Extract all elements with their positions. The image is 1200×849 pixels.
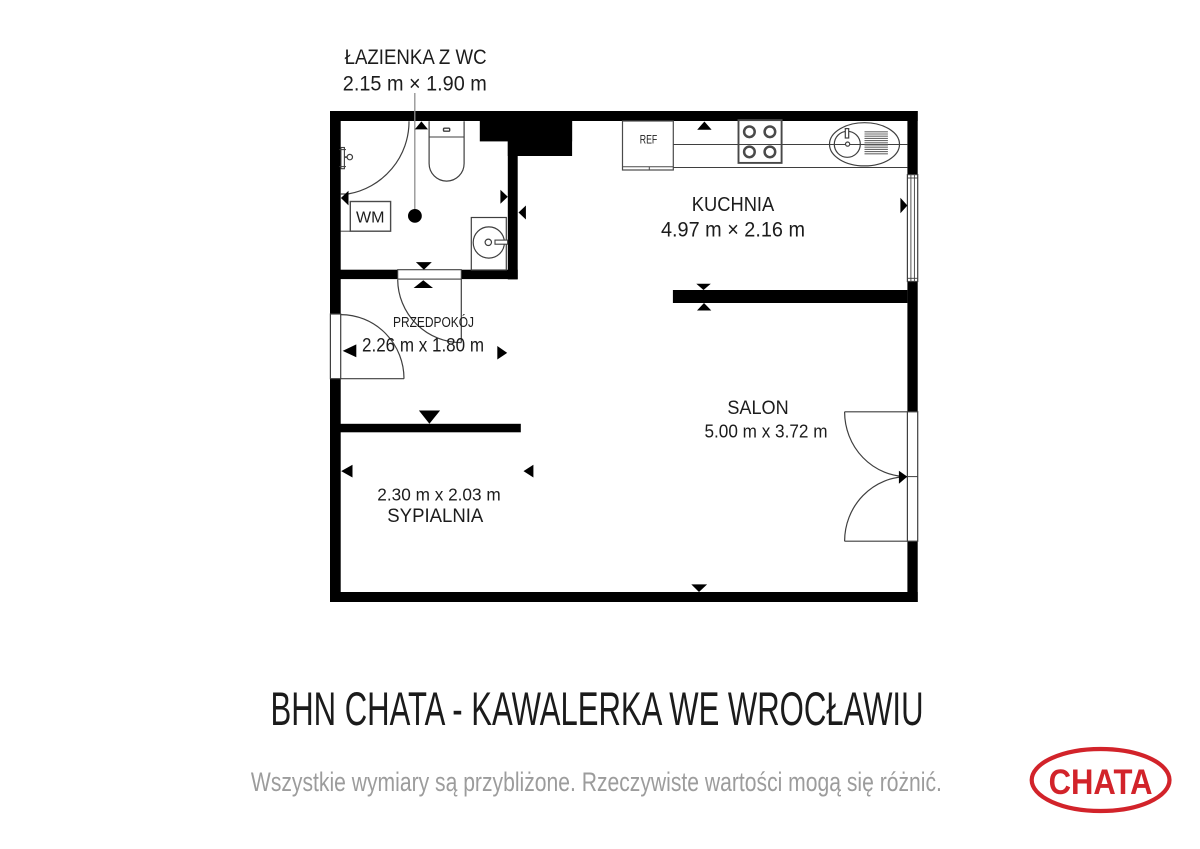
svg-text:2.15 m × 1.90 m: 2.15 m × 1.90 m <box>343 72 487 96</box>
svg-text:2.30 m x 2.03 m: 2.30 m x 2.03 m <box>377 485 500 505</box>
svg-text:BHN CHATA - KAWALERKA WE WROCŁ: BHN CHATA - KAWALERKA WE WROCŁAWIU <box>271 682 924 735</box>
svg-text:CHATA: CHATA <box>1049 763 1153 802</box>
svg-text:SALON: SALON <box>727 397 788 419</box>
svg-text:4.97 m × 2.16 m: 4.97 m × 2.16 m <box>661 218 805 242</box>
svg-text:ŁAZIENKA Z WC: ŁAZIENKA Z WC <box>345 45 487 69</box>
svg-text:5.00 m x 3.72 m: 5.00 m x 3.72 m <box>705 420 828 441</box>
svg-text:2.26 m x 1.80 m: 2.26 m x 1.80 m <box>362 336 484 357</box>
svg-text:KUCHNIA: KUCHNIA <box>692 193 775 216</box>
svg-text:WM: WM <box>356 209 385 226</box>
svg-text:PRZEDPOKÓJ: PRZEDPOKÓJ <box>393 314 474 331</box>
svg-text:SYPIALNIA: SYPIALNIA <box>387 505 483 527</box>
svg-text:REF: REF <box>640 135 658 147</box>
svg-text:Wszystkie wymiary są przybliżo: Wszystkie wymiary są przybliżone. Rzeczy… <box>251 767 942 797</box>
